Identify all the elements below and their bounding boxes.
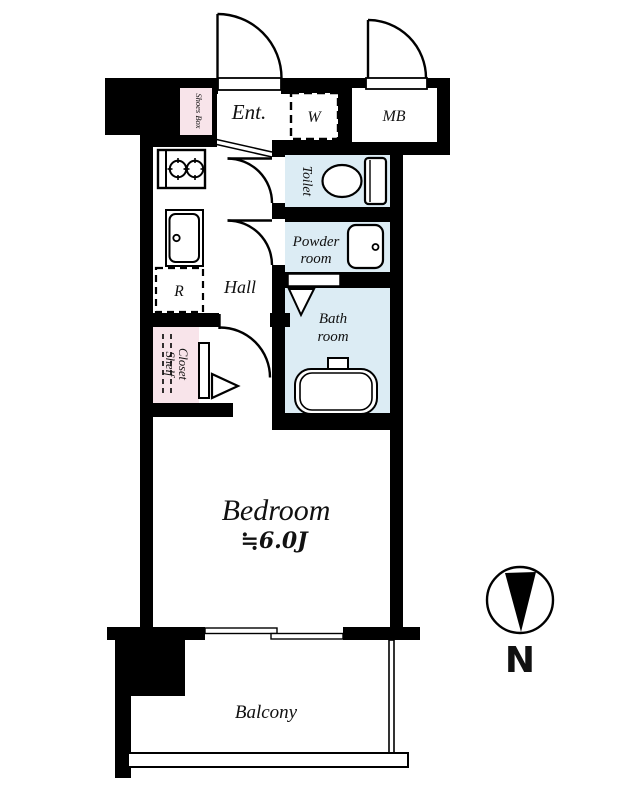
balcony-label: Balcony bbox=[235, 702, 298, 723]
floor-plan-drawing: N Ent. W MB Shoes Box Toilet Powder room… bbox=[0, 0, 622, 800]
toilet-bowl bbox=[323, 165, 362, 197]
toilet-tank bbox=[365, 158, 386, 204]
balcony-rail-bottom bbox=[128, 753, 408, 767]
bedroom-door-opening bbox=[219, 313, 270, 327]
bedroom-size-label: ≒6.0J bbox=[240, 528, 309, 554]
bathtub bbox=[295, 369, 377, 414]
wall-balcony-pillar bbox=[115, 639, 185, 696]
wall-closet-bottom bbox=[140, 403, 233, 417]
powder-door-arc bbox=[228, 221, 273, 266]
window-panel-left bbox=[205, 628, 277, 634]
shoes-box-label: Shoes Box bbox=[194, 93, 204, 128]
entrance-door-arc bbox=[218, 14, 282, 78]
hall-label: Hall bbox=[223, 277, 256, 297]
powder-room-label-2: room bbox=[300, 251, 331, 267]
bath-room-label-1: Bath bbox=[319, 311, 347, 327]
floor-plan-page: N Ent. W MB Shoes Box Toilet Powder room… bbox=[0, 0, 622, 800]
closet-label-2: Shelf bbox=[163, 352, 177, 379]
meterbox-door-sill bbox=[366, 78, 427, 89]
entrance-label: Ent. bbox=[231, 100, 266, 124]
entrance-step-lines bbox=[210, 138, 272, 157]
bedroom-label: Bedroom bbox=[222, 494, 331, 527]
wall-pillar-top-left bbox=[105, 78, 170, 135]
wall-hall-bedroom-left bbox=[140, 313, 219, 327]
closet-label: Closet Shelf bbox=[163, 348, 190, 380]
refrigerator-label: R bbox=[173, 283, 184, 300]
closet-door-arrow bbox=[212, 374, 238, 398]
toilet-door-arc bbox=[228, 159, 273, 204]
meterbox-door-arc bbox=[368, 20, 426, 78]
bath-room-label-2: room bbox=[317, 329, 348, 345]
wall-right bbox=[390, 143, 403, 640]
bath-sliding-door bbox=[288, 274, 340, 286]
compass-north-label: N bbox=[505, 640, 535, 681]
compass: N bbox=[487, 567, 553, 681]
wall-bath-bottom bbox=[272, 413, 403, 430]
wall-top-mid bbox=[281, 78, 340, 94]
window-panel-right bbox=[271, 634, 343, 640]
closet-door-panel bbox=[199, 343, 209, 398]
wall-toilet-powder-divider bbox=[272, 207, 403, 222]
washer-label: W bbox=[307, 109, 322, 126]
closet-label-1: Closet bbox=[176, 348, 190, 380]
balcony-rail-right bbox=[389, 640, 394, 754]
bedroom-door-arc bbox=[220, 328, 270, 378]
toilet-door-opening bbox=[272, 157, 285, 203]
powder-door-opening bbox=[272, 219, 285, 265]
entrance-door-sill bbox=[218, 78, 281, 90]
powder-sink bbox=[348, 225, 383, 268]
wall-below-entrance bbox=[272, 140, 390, 155]
wall-left bbox=[140, 135, 153, 629]
wall-hall-bedroom-right bbox=[270, 313, 290, 327]
powder-faucet bbox=[373, 244, 379, 250]
toilet-label: Toilet bbox=[300, 166, 315, 198]
powder-room-label-1: Powder bbox=[292, 234, 340, 250]
meter-box-label: MB bbox=[381, 108, 405, 125]
kitchen-faucet bbox=[173, 235, 179, 241]
